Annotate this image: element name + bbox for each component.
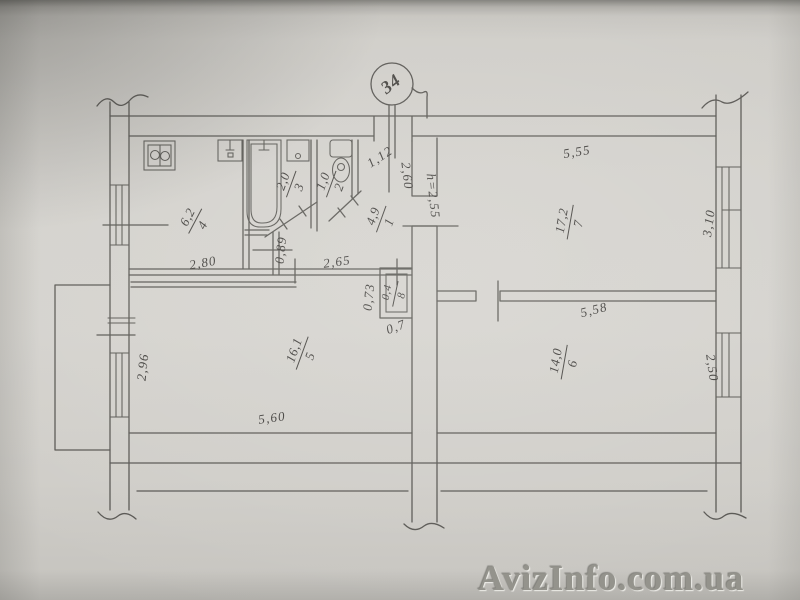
stove-icon (144, 141, 175, 170)
dim-hall-right: 2,60 (397, 161, 416, 190)
watermark: AvizInfo.com.ua (478, 557, 744, 599)
wall-kitchen-bath (243, 140, 249, 269)
wall-break-bottom-middle (404, 523, 444, 529)
wall-break-bottom-right (704, 512, 746, 519)
washbasin-icon (287, 140, 309, 161)
room-number: 6 (564, 359, 580, 369)
room-number: 3 (290, 181, 306, 193)
room-number: 4 (194, 218, 210, 231)
window-room7 (716, 167, 741, 268)
room-number: 5 (301, 350, 317, 362)
room-number: 2 (330, 181, 346, 193)
sink-icon (218, 140, 242, 161)
floor-plan-photo: 34 4,9 1 1,0 2 2,0 3 6,2 4 16,1 5 14,0 6… (0, 0, 800, 600)
window-room5 (110, 353, 129, 417)
wall-bottom (110, 433, 741, 491)
floor-plan: 34 4,9 1 1,0 2 2,0 3 6,2 4 16,1 5 14,0 6… (0, 0, 800, 600)
wall-break-top-left (97, 95, 148, 106)
window-kitchen (110, 185, 129, 245)
room-label-7: 17,2 7 (552, 202, 588, 242)
wall-toilet-hall (352, 140, 358, 198)
wall-break-bottom-left (98, 512, 136, 519)
dim-closet-side: 0,73 (360, 282, 379, 311)
wall-room7-room6 (437, 291, 716, 301)
wall-left (110, 102, 129, 510)
dim-door-width: 0,89 (272, 235, 291, 264)
room-number: 1 (380, 216, 396, 228)
wall-right (716, 95, 741, 512)
room-number: 8 (395, 291, 409, 300)
balcony (55, 285, 110, 450)
balcony-door-jamb (108, 318, 135, 323)
room-label-6: 14,0 6 (546, 342, 582, 382)
wall-top (110, 116, 716, 141)
dim-room5-left: 2,96 (134, 352, 153, 381)
room-label-8: 0,4 8 (379, 279, 410, 309)
callout-leader-wavy (412, 88, 427, 118)
room-number: 7 (570, 219, 586, 229)
